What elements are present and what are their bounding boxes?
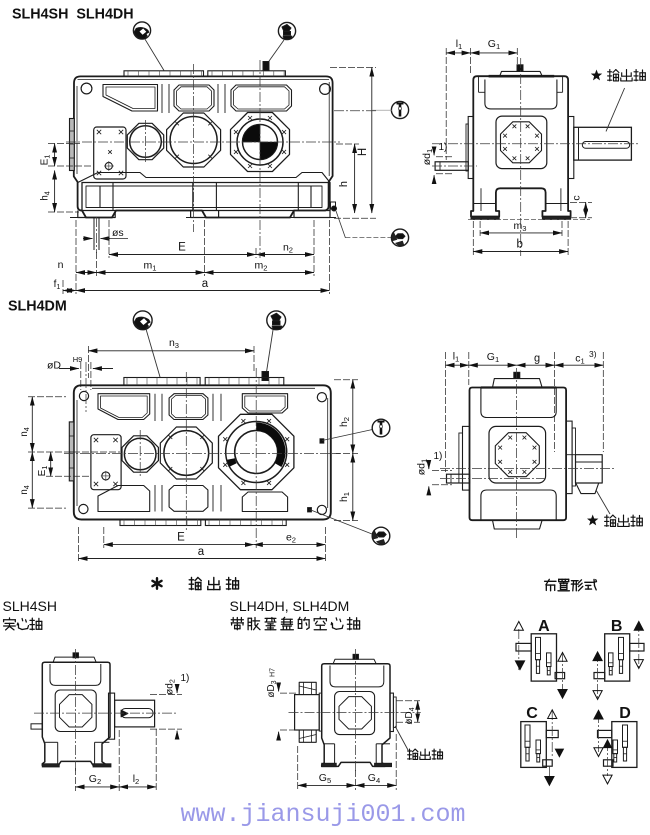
svg-text:g: g <box>534 353 540 365</box>
svg-text:E: E <box>178 242 186 254</box>
svg-text:1): 1) <box>181 673 190 684</box>
svg-text:B: B <box>611 618 623 635</box>
svg-text:1): 1) <box>439 142 448 153</box>
svg-text:SLH4DM: SLH4DM <box>8 299 67 315</box>
svg-text:øD: øD <box>47 359 61 371</box>
svg-text:H7: H7 <box>270 668 277 677</box>
svg-text:C: C <box>526 705 538 722</box>
svg-text:a: a <box>202 278 209 290</box>
svg-text:øs: øs <box>112 227 124 239</box>
svg-text:n: n <box>58 259 64 271</box>
svg-text:3): 3) <box>589 349 597 359</box>
svg-text:A: A <box>538 618 550 635</box>
svg-text:D: D <box>619 705 631 722</box>
svg-text:E: E <box>177 532 185 544</box>
svg-text:SLH4SH: SLH4SH <box>3 598 57 614</box>
svg-text:b: b <box>516 239 522 251</box>
svg-text:c: c <box>571 195 583 200</box>
svg-text:h: h <box>338 181 350 187</box>
svg-text:SLH4SH SLH4DH: SLH4SH SLH4DH <box>12 7 134 23</box>
svg-text:H9: H9 <box>73 355 83 364</box>
svg-text:SLH4DH, SLH4DM: SLH4DH, SLH4DM <box>230 598 350 614</box>
svg-text:1): 1) <box>434 451 443 462</box>
svg-text:www.jiansuji001.com: www.jiansuji001.com <box>180 800 465 829</box>
svg-text:a: a <box>198 546 205 558</box>
svg-text:H: H <box>357 148 369 156</box>
